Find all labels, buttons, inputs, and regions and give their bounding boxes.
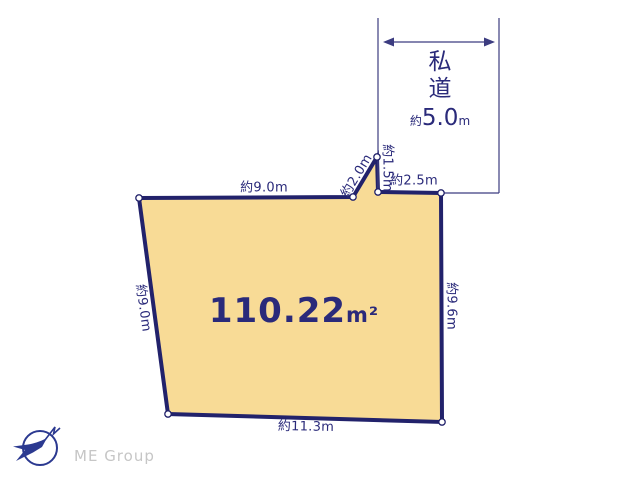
road-width-prefix: 約 xyxy=(410,114,422,128)
road-width-unit: m xyxy=(458,114,470,128)
arrowhead-right xyxy=(484,38,495,47)
vertex-marker xyxy=(438,190,444,196)
road-width-label: 約5.0m xyxy=(410,106,470,133)
plot-geometry xyxy=(0,0,640,480)
private-road-label: 私 道 約5.0m xyxy=(410,49,470,133)
parcel-shape xyxy=(139,157,442,422)
land-plot-diagram: 110.22m² 私 道 約5.0m ME Group 約9.0m約2.0m約1… xyxy=(0,0,640,480)
dimension-label-top-edge: 約9.0m xyxy=(240,182,288,195)
road-name-char-2: 道 xyxy=(410,76,470,103)
dimension-label-frontage-edge: 約2.5m xyxy=(390,175,438,188)
compass-bird-icon xyxy=(10,420,64,472)
area-unit: m² xyxy=(346,303,379,327)
dimension-label-right-edge: 約9.6m xyxy=(445,282,458,330)
me-group-logo: ME Group xyxy=(10,420,155,472)
vertex-marker xyxy=(136,195,142,201)
road-name-char-1: 私 xyxy=(410,49,470,76)
dimension-label-bottom-edge: 約11.3m xyxy=(278,420,335,434)
area-value: 110.22 xyxy=(209,291,346,331)
logo-text: ME Group xyxy=(74,447,155,465)
vertex-marker xyxy=(439,419,445,425)
arrowhead-left xyxy=(383,38,394,47)
parcel-area-label: 110.22m² xyxy=(209,291,379,331)
vertex-marker xyxy=(165,411,171,417)
road-width-value: 5.0 xyxy=(422,105,459,131)
